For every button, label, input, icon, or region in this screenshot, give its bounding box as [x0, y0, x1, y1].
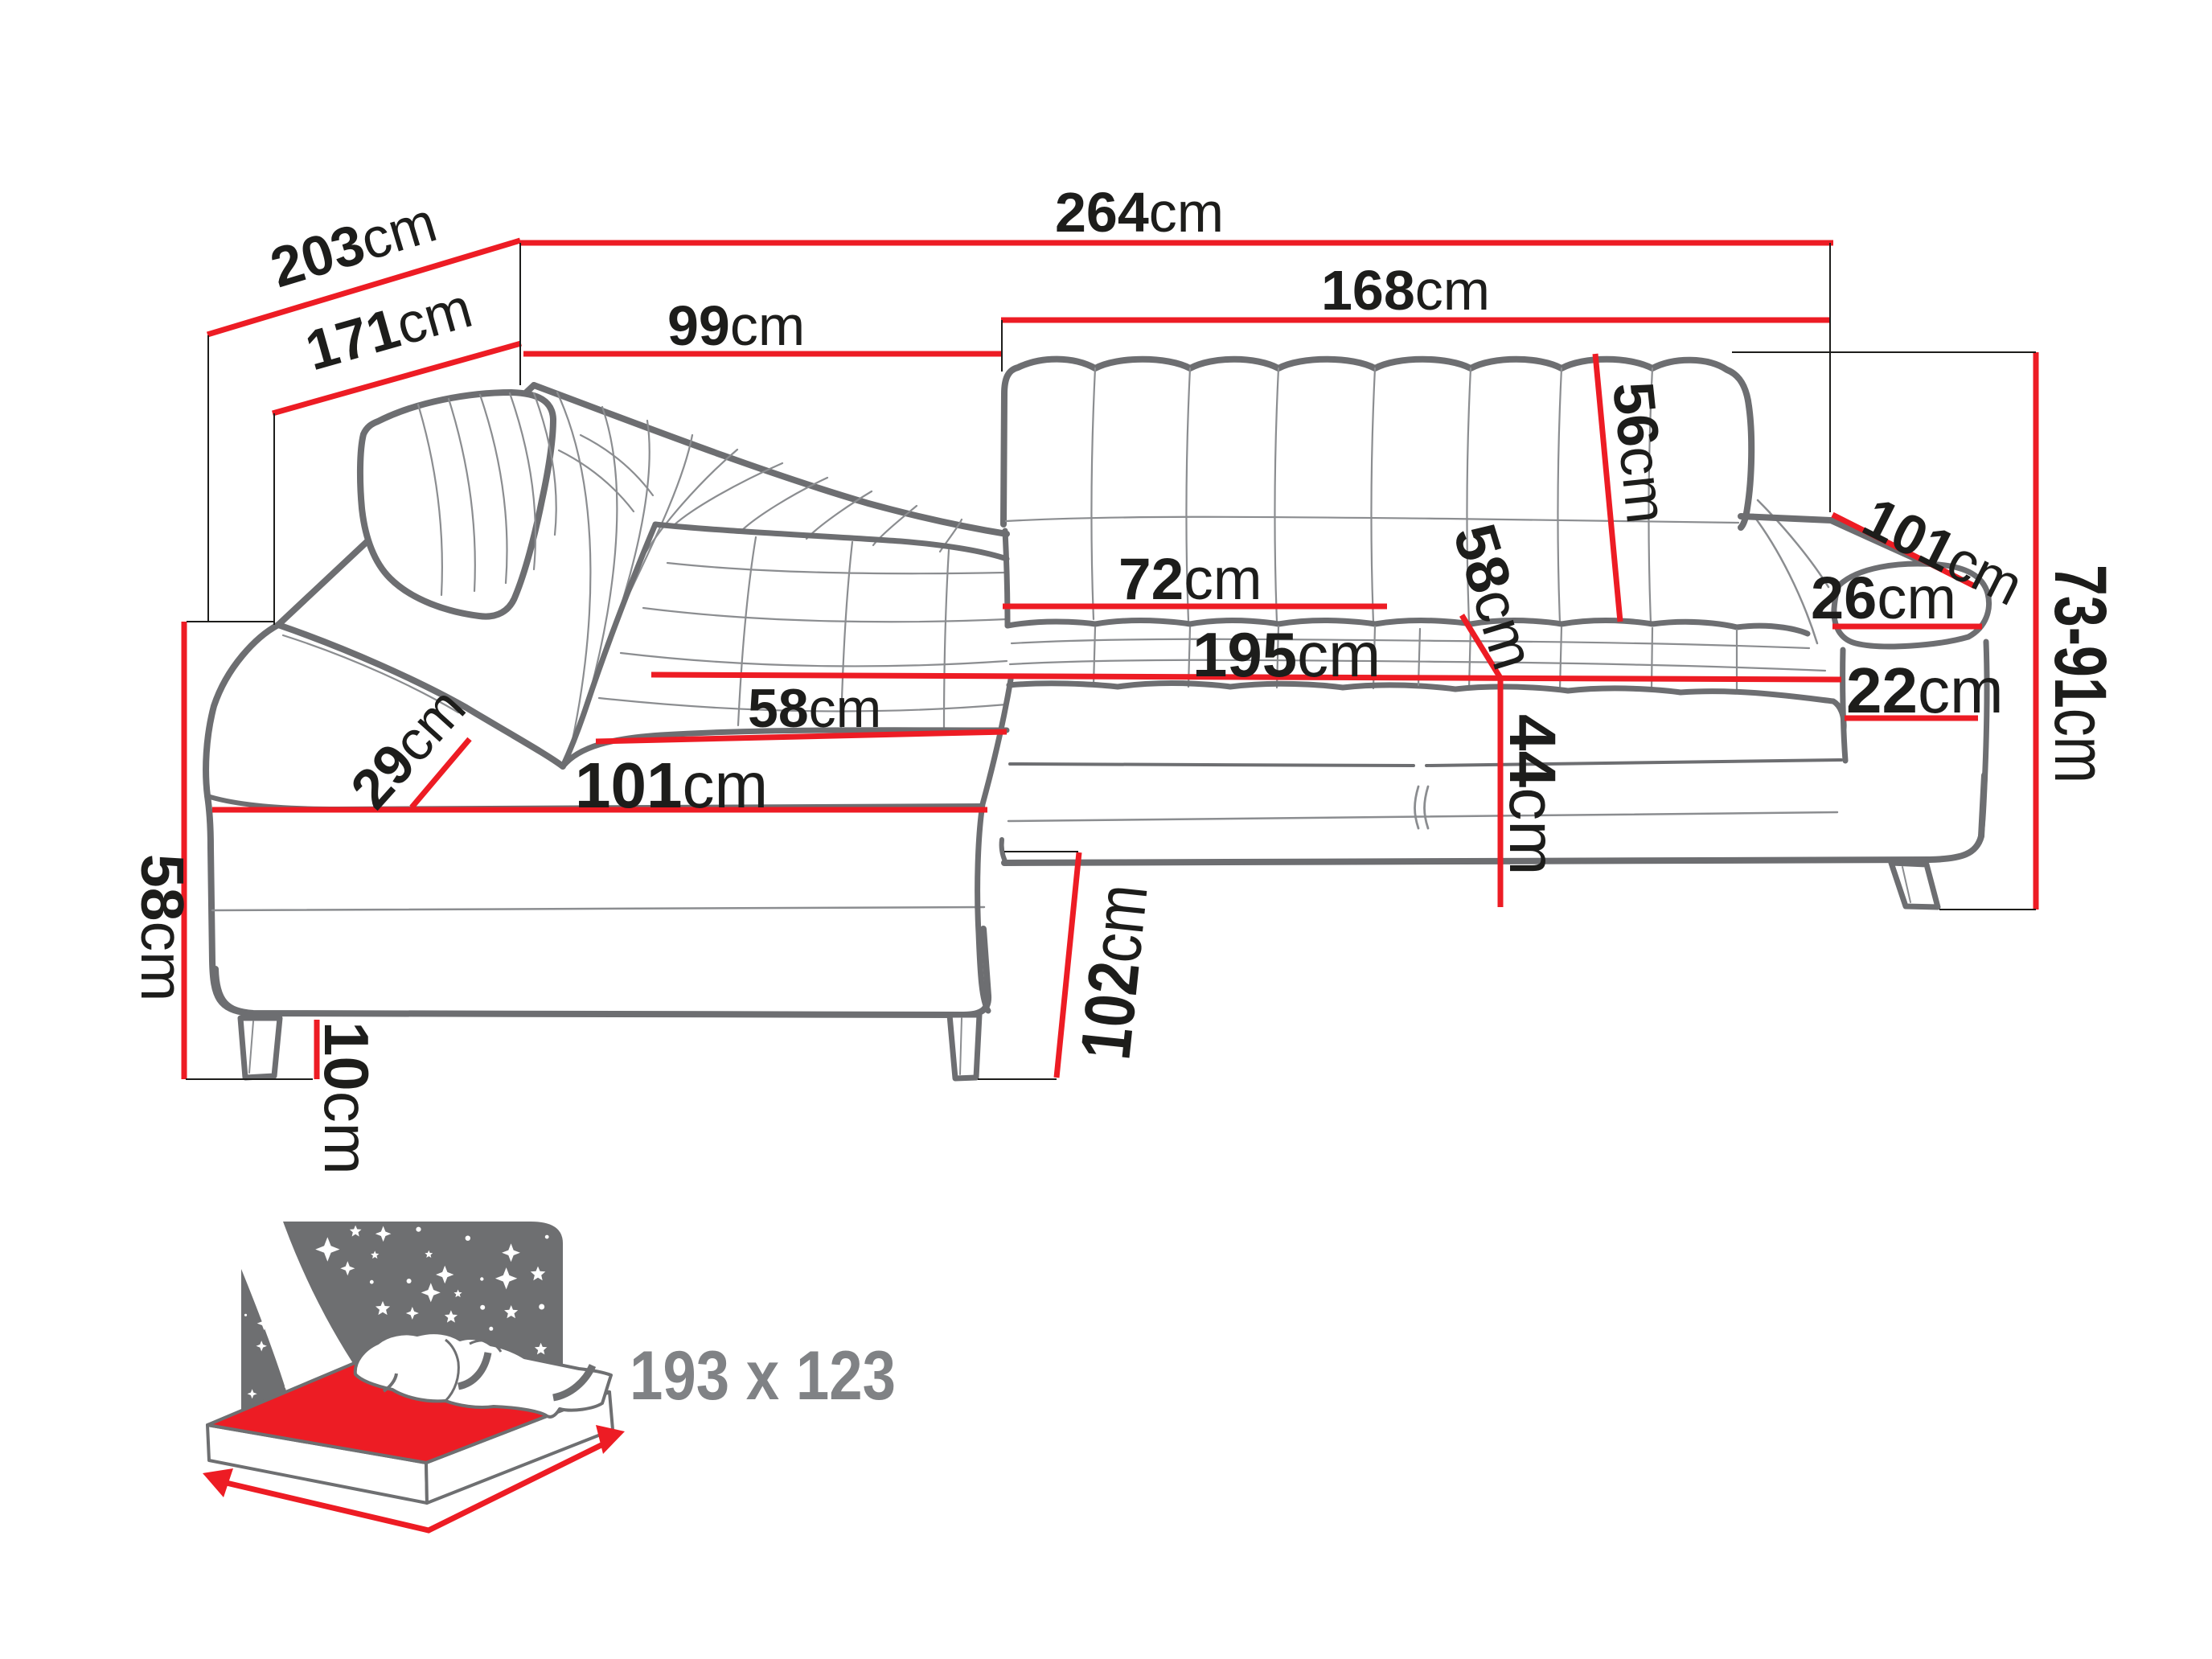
- svg-text:99cm: 99cm: [667, 294, 805, 357]
- svg-text:26cm: 26cm: [1811, 565, 1956, 631]
- svg-text:168cm: 168cm: [1321, 259, 1490, 322]
- svg-text:193 x 123: 193 x 123: [630, 1337, 896, 1415]
- svg-text:44cm: 44cm: [1496, 714, 1569, 876]
- svg-text:72cm: 72cm: [1118, 547, 1262, 612]
- svg-text:101cm: 101cm: [575, 749, 768, 821]
- svg-text:10cm: 10cm: [311, 1021, 382, 1175]
- svg-text:22cm: 22cm: [1846, 655, 2004, 726]
- svg-text:73-91cm: 73-91cm: [2039, 565, 2121, 783]
- svg-text:58cm: 58cm: [129, 854, 196, 1001]
- svg-text:58cm: 58cm: [748, 678, 881, 739]
- svg-text:264cm: 264cm: [1055, 181, 1224, 244]
- svg-text:195cm: 195cm: [1192, 619, 1381, 690]
